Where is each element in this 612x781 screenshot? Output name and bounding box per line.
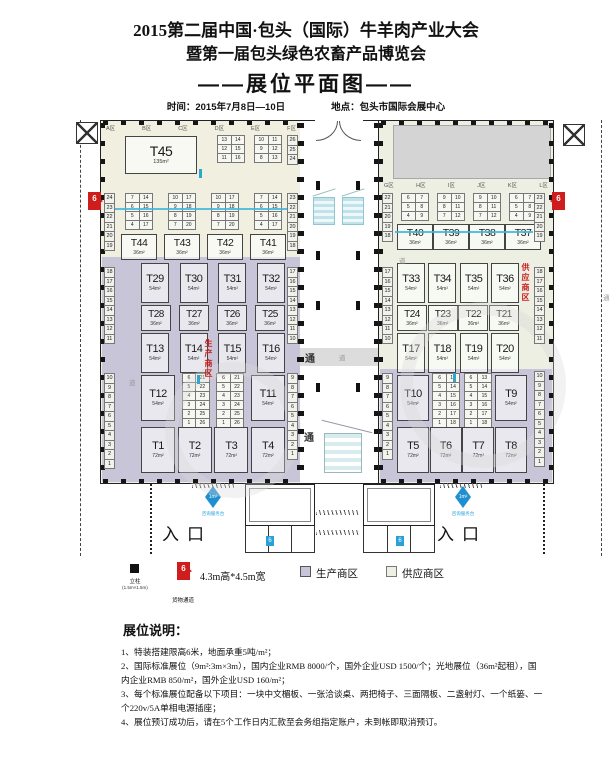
perimeter-booth-22: 22 — [288, 204, 297, 213]
cargo-legend-label: 货物通道 — [172, 596, 194, 604]
booth-group: 1017918819720 T4236m² — [207, 193, 243, 260]
cross-corridor: 通 道 — [300, 348, 378, 366]
grid-booth-12: 12 — [218, 145, 231, 153]
grid-booth-10: 10 — [169, 194, 182, 202]
booth-grid: 131412151116 — [217, 135, 245, 163]
grid-booth-18: 18 — [183, 203, 196, 211]
perimeter-booth-15: 15 — [105, 297, 114, 306]
perimeter-booth-17: 17 — [105, 278, 114, 287]
perimeter-booth-8: 8 — [105, 393, 114, 402]
booth-area: 36m² — [481, 241, 492, 246]
grid-booth-11: 11 — [452, 203, 465, 211]
perimeter-booth-8: 8 — [535, 391, 544, 400]
perimeter-booth-9: 9 — [535, 382, 544, 391]
booth-grid: 910811712 — [437, 193, 465, 221]
perimeter-booth-5: 5 — [288, 412, 297, 421]
booth-T31: T3154m² — [218, 263, 246, 303]
pillar-wall — [103, 479, 299, 483]
perimeter-booth-19: 19 — [105, 242, 114, 251]
zone-label-G区: G区 — [384, 181, 394, 189]
booth-number: T26 — [224, 310, 240, 320]
standard-booth-row: 675849 T4036m² 910811712 T3936m² 9108117… — [397, 193, 531, 250]
grid-booth-8: 8 — [416, 203, 429, 211]
note-item-3: 3、每个标准展位配备以下项目：一块中文楣板、一张洽谈桌、两把椅子、三面隔板、二盏… — [121, 688, 545, 715]
booth-area: 36m² — [517, 241, 528, 246]
booth-T29: T2954m² — [141, 263, 169, 303]
booth-area: 36m² — [176, 251, 187, 256]
notes-title: 展位说明： — [123, 620, 188, 639]
perimeter-booth-8: 8 — [383, 384, 392, 393]
central-lobby: 通 道 通 道 — [300, 120, 378, 484]
booth-T30: T3054m² — [180, 263, 208, 303]
booth-T38: T3836m² — [469, 224, 505, 250]
booth-number: T35 — [465, 274, 482, 285]
grid-booth-20: 20 — [226, 221, 239, 229]
zone-label-H区: H区 — [416, 181, 425, 189]
perimeter-booth-17: 17 — [288, 268, 297, 277]
booth-grid: 675849 — [509, 193, 537, 221]
booth-area: 36m² — [264, 322, 275, 327]
booth-area: 72m² — [407, 454, 418, 459]
supplier-zone-label: 供应商区 — [520, 263, 531, 323]
booth-area: 54m² — [188, 287, 199, 292]
perimeter-booth-1: 1 — [105, 460, 114, 469]
booth-number: T33 — [402, 274, 419, 285]
booth-area: 36m² — [188, 322, 199, 327]
booth-T36: T3654m² — [491, 263, 519, 303]
info-point-label: 咨询服务台 — [183, 511, 243, 517]
perimeter-booth-6: 6 — [383, 403, 392, 412]
perimeter-strip: 987654321 — [287, 373, 298, 460]
producer-zone-legend-label: 生产商区 — [316, 566, 358, 581]
booth-group: 910811712 T3936m² — [433, 193, 469, 250]
grid-booth-7: 7 — [438, 212, 451, 220]
perimeter-booth-1: 1 — [535, 458, 544, 467]
perimeter-booth-6: 6 — [535, 410, 544, 419]
grid-booth-17: 17 — [183, 194, 196, 202]
entrance-label: 入口 — [162, 520, 212, 545]
perimeter-booth-2: 2 — [105, 450, 114, 459]
grid-booth-5: 5 — [126, 212, 139, 220]
zone-label-K区: K区 — [508, 181, 517, 189]
booth-area: 54m² — [149, 287, 160, 292]
pillar-wall — [549, 123, 553, 481]
perimeter-booth-10: 10 — [288, 335, 297, 344]
grid-booth-5: 5 — [402, 203, 415, 211]
perimeter-booth-15: 15 — [535, 297, 544, 306]
booth-grid: 675849 — [401, 193, 429, 221]
booth-number: T14 — [185, 344, 202, 355]
pillar — [356, 301, 360, 310]
booth-T42: T4236m² — [207, 234, 243, 260]
fence-line — [543, 484, 545, 554]
grid-booth-7: 7 — [474, 212, 487, 220]
perimeter-booth-16: 16 — [288, 278, 297, 287]
grid-booth-11: 11 — [488, 203, 501, 211]
grid-booth-17: 17 — [269, 221, 282, 229]
cargo-legend-icon: 6 — [177, 562, 190, 580]
booth-area: 36m² — [445, 241, 456, 246]
zone-label-C区: C区 — [178, 124, 187, 132]
perimeter-booth-14: 14 — [383, 297, 392, 306]
corridor-label: 道 — [399, 255, 406, 265]
ramp-hatch — [316, 510, 360, 515]
grid-booth-4: 4 — [255, 221, 268, 229]
booth-area: 36m² — [226, 322, 237, 327]
perimeter-booth-20: 20 — [535, 223, 544, 232]
grid-booth-8: 8 — [212, 212, 225, 220]
booth-number: T32 — [262, 274, 279, 285]
zone-label-A区: A区 — [106, 124, 115, 132]
booth-number: T29 — [146, 274, 163, 285]
perimeter-booth-7: 7 — [105, 403, 114, 412]
grid-booth-15: 15 — [140, 203, 153, 211]
perimeter-booth-3: 3 — [105, 441, 114, 450]
perimeter-booth-16: 16 — [105, 287, 114, 296]
cyan-line — [395, 231, 533, 233]
booth-group: 910811712 T3836m² — [469, 193, 505, 250]
hydrant-marker — [199, 169, 202, 178]
staircase-icon — [324, 433, 362, 473]
blue-number-icon: 6 — [396, 536, 404, 546]
event-time: 时间：2015年7月8日—10日 — [167, 99, 285, 113]
perimeter-booth-12: 12 — [105, 325, 114, 334]
stage-area — [393, 125, 551, 179]
booth-area: 36m² — [409, 241, 420, 246]
perimeter-booth-20: 20 — [383, 213, 392, 222]
grid-booth-7: 7 — [212, 221, 225, 229]
grid-booth-10: 10 — [452, 194, 465, 202]
booth-number: T36 — [496, 274, 513, 285]
booth-area: 72m² — [152, 454, 163, 459]
stair-box-icon — [563, 124, 585, 146]
grid-booth-17: 17 — [226, 194, 239, 202]
booth-row: T2836m²T2736m²T2636m²T2536m² — [141, 305, 285, 331]
booth-number: T24 — [404, 310, 420, 320]
grid-booth-12: 12 — [269, 145, 282, 153]
booth-area: 54m² — [468, 287, 479, 292]
grid-booth-4: 4 — [510, 212, 523, 220]
perimeter-booth-13: 13 — [383, 306, 392, 315]
booth-group: 714615516417 T4136m² — [250, 193, 286, 260]
door-leaf-icon — [316, 121, 338, 141]
perimeter-booth-20: 20 — [288, 223, 297, 232]
booth-T41: T4136m² — [250, 234, 286, 260]
booth-number: T44 — [131, 238, 148, 249]
grid-booth-7: 7 — [126, 194, 139, 202]
perimeter-strip: 262524 — [287, 135, 298, 165]
booth-T32: T3254m² — [257, 263, 285, 303]
grid-booth-14: 14 — [232, 136, 245, 144]
room — [292, 526, 314, 552]
grid-booth-9: 9 — [416, 212, 429, 220]
perimeter-strip: 1817161514131211 — [104, 267, 115, 344]
pillar-swatch — [130, 564, 139, 573]
perimeter-booth-11: 11 — [288, 325, 297, 334]
event-subtitle: 暨第一届包头绿色农畜产品博览会 — [0, 40, 612, 64]
hydrant-marker — [453, 373, 456, 382]
perimeter-booth-7: 7 — [383, 393, 392, 402]
booth-number: T39 — [443, 228, 460, 239]
entrance-rooms — [245, 526, 315, 553]
zone-label-B区: B区 — [142, 124, 151, 132]
grid-booth-8: 8 — [255, 154, 268, 162]
booth-T43: T4336m² — [164, 234, 200, 260]
perimeter-strip: 987654321 — [382, 373, 393, 460]
door-leaf-icon — [339, 121, 361, 141]
perimeter-booth-13: 13 — [288, 306, 297, 315]
perimeter-booth-3: 3 — [535, 439, 544, 448]
grid-booth-19: 19 — [226, 212, 239, 220]
grid-booth-7: 7 — [255, 194, 268, 202]
note-item-2: 2、国际标准展位（9m²:3m×3m），国内企业RMB 8000/个，国外企业U… — [121, 660, 545, 687]
cargo-passage-icon: 6 — [552, 192, 565, 210]
perimeter-booth-14: 14 — [288, 297, 297, 306]
booth-area: 54m² — [188, 357, 199, 362]
perimeter-booth-2: 2 — [535, 448, 544, 457]
pillar-wall — [300, 123, 304, 481]
zone-label-L区: L区 — [539, 181, 548, 189]
pillar-wall — [381, 121, 551, 125]
info-point-icon: 1m² — [455, 486, 471, 508]
booth-T26: T2636m² — [217, 305, 247, 331]
booth-area: 54m² — [499, 287, 510, 292]
standard-booth-row: 714615516417 T4436m² 1017918819720 T4336… — [121, 193, 286, 260]
grid-booth-13: 13 — [269, 154, 282, 162]
corridor-label: 通 — [304, 429, 314, 444]
room — [411, 526, 434, 552]
perimeter-booth-10: 10 — [105, 374, 114, 383]
note-item-4: 4、展位预订成功后，请在5个工作日内汇款至会务组指定账户，未到帐即取消预订。 — [121, 716, 545, 729]
perimeter-booth-2: 2 — [383, 441, 392, 450]
booth-grid: 910811712 — [473, 193, 501, 221]
escalator-icon — [313, 197, 335, 225]
perimeter-booth-21: 21 — [288, 213, 297, 222]
supplier-zone-swatch — [386, 566, 397, 577]
perimeter-booth-10: 10 — [535, 372, 544, 381]
pillar-wall — [381, 479, 551, 483]
booth-number: T40 — [407, 228, 424, 239]
grid-booth-16: 16 — [269, 212, 282, 220]
blue-number-icon: 6 — [266, 536, 274, 546]
perimeter-booth-4: 4 — [288, 422, 297, 431]
booth-number: T5 — [407, 441, 419, 452]
perimeter-booth-13: 13 — [105, 316, 114, 325]
grid-booth-4: 4 — [402, 212, 415, 220]
event-title: 2015第二届中国·包头（国际）牛羊肉产业大会 — [0, 16, 612, 41]
grid-booth-8: 8 — [169, 212, 182, 220]
pillar — [316, 251, 320, 260]
zone-label-D区: D区 — [215, 124, 224, 132]
perimeter-booth-19: 19 — [383, 223, 392, 232]
booth-number: T30 — [185, 274, 202, 285]
booth-number: T25 — [262, 310, 278, 320]
perimeter-booth-21: 21 — [105, 223, 114, 232]
perimeter-strip: 2322212019 — [534, 193, 545, 242]
booth-area: 135m² — [153, 160, 169, 166]
perimeter-booth-3: 3 — [288, 431, 297, 440]
grid-booth-9: 9 — [255, 145, 268, 153]
booth-area: 36m² — [150, 322, 161, 327]
zone-label-F区: F区 — [287, 124, 296, 132]
perimeter-booth-4: 4 — [105, 431, 114, 440]
grid-booth-9: 9 — [212, 203, 225, 211]
floor-plan-page: { "header": { "title1": "2015第二届中国·包头（国际… — [0, 0, 612, 781]
ramp-hatch — [316, 530, 360, 535]
perimeter-booth-18: 18 — [535, 268, 544, 277]
grid-booth-6: 6 — [255, 203, 268, 211]
perimeter-booth-8: 8 — [288, 384, 297, 393]
grid-booth-6: 6 — [510, 194, 523, 202]
booth-area: 36m² — [262, 251, 273, 256]
booth-T44: T4436m² — [121, 234, 157, 260]
perimeter-booth-18: 18 — [105, 268, 114, 277]
booth-number: T12 — [149, 389, 166, 400]
note-item-1: 1、特装搭建限高6米，地面承重5吨/m²； — [121, 646, 545, 659]
perimeter-booth-9: 9 — [105, 384, 114, 393]
pillar — [356, 251, 360, 260]
perimeter-booth-12: 12 — [535, 325, 544, 334]
corridor-label: 道 — [339, 352, 346, 362]
booth-number: T13 — [146, 344, 163, 355]
ramp-hatch — [440, 483, 482, 488]
booth-T45: T45135m² — [125, 136, 197, 174]
perimeter-booth-1: 1 — [383, 450, 392, 459]
booth-area: 54m² — [152, 402, 163, 407]
booth-number: T34 — [434, 274, 451, 285]
booth-number: T42 — [217, 238, 234, 249]
grid-booth-4: 4 — [126, 221, 139, 229]
grid-booth-17: 17 — [140, 221, 153, 229]
perimeter-booth-11: 11 — [535, 335, 544, 344]
grid-booth-5: 5 — [255, 212, 268, 220]
watermark-shape — [165, 362, 301, 498]
perimeter-booth-14: 14 — [535, 306, 544, 315]
booth-T27: T2736m² — [179, 305, 209, 331]
perimeter-strip: 1716151413121110 — [382, 267, 393, 344]
booth-area: 54m² — [149, 357, 160, 362]
booth-grid: 1017918819720 — [211, 193, 239, 230]
booth-number: T45 — [150, 144, 173, 158]
grid-booth-9: 9 — [169, 203, 182, 211]
room — [364, 526, 388, 552]
perimeter-booth-16: 16 — [383, 278, 392, 287]
perimeter-strip: 1817161514131211 — [534, 267, 545, 344]
booth-area: 36m² — [406, 322, 417, 327]
grid-booth-9: 9 — [438, 194, 451, 202]
booth-grid: 714615516417 — [125, 193, 153, 230]
supplier-zone-legend-label: 供应商区 — [402, 566, 444, 581]
booth-T16: T1654m² — [257, 333, 285, 373]
booth-number: T16 — [262, 344, 279, 355]
perimeter-booth-15: 15 — [288, 287, 297, 296]
booth-row: T2954m²T3054m²T3154m²T3254m² — [141, 263, 285, 303]
perimeter-strip: 1716151413121110 — [287, 267, 298, 344]
perimeter-booth-17: 17 — [535, 278, 544, 287]
booth-group: 675849 T4036m² — [397, 193, 433, 250]
grid-booth-20: 20 — [183, 221, 196, 229]
perimeter-booth-1: 1 — [288, 450, 297, 459]
booth-number: T38 — [479, 228, 496, 239]
stair-box-icon — [76, 122, 98, 144]
pillar — [316, 181, 320, 190]
producer-zone-swatch — [300, 566, 311, 577]
perimeter-booth-7: 7 — [288, 393, 297, 402]
perimeter-strip: 10987654321 — [104, 373, 115, 469]
site-boundary-right — [601, 120, 602, 556]
booth-grid: 1011912813 — [254, 135, 282, 163]
pillar-legend-size: (1.5m×1.5m) — [108, 585, 162, 590]
booth-row: T3354m²T3454m²T3554m²T3654m² — [397, 263, 519, 303]
info-point-label: 咨询服务台 — [433, 511, 493, 517]
booth-area: 54m² — [405, 287, 416, 292]
perimeter-strip: 10987654321 — [534, 371, 545, 467]
perimeter-booth-9: 9 — [288, 374, 297, 383]
booth-number: T31 — [224, 274, 241, 285]
perimeter-booth-18: 18 — [383, 232, 392, 241]
booth-area: 54m² — [265, 357, 276, 362]
pillar-wall — [374, 123, 378, 481]
perimeter-booth-4: 4 — [383, 422, 392, 431]
perimeter-booth-22: 22 — [535, 204, 544, 213]
booth-T25: T2536m² — [255, 305, 285, 331]
perimeter-booth-24: 24 — [288, 155, 297, 164]
fence-line — [150, 484, 152, 554]
perimeter-booth-21: 21 — [383, 204, 392, 213]
grid-booth-11: 11 — [269, 136, 282, 144]
grid-booth-16: 16 — [232, 154, 245, 162]
entrance-label: 入口 — [437, 520, 487, 545]
event-venue: 地点：包头市国际会展中心 — [331, 99, 445, 113]
plan-title: ——展位平面图—— — [0, 68, 612, 98]
perimeter-booth-5: 5 — [383, 412, 392, 421]
perimeter-booth-21: 21 — [535, 213, 544, 222]
zone-label-J区: J区 — [477, 181, 485, 189]
perimeter-booth-6: 6 — [105, 412, 114, 421]
perimeter-booth-10: 10 — [383, 335, 392, 344]
perimeter-booth-12: 12 — [288, 316, 297, 325]
perimeter-booth-7: 7 — [535, 401, 544, 410]
booth-area: 36m² — [133, 251, 144, 256]
perimeter-strip: 2221201918 — [382, 193, 393, 242]
perimeter-booth-5: 5 — [535, 420, 544, 429]
grid-booth-10: 10 — [488, 194, 501, 202]
perimeter-booth-22: 22 — [105, 213, 114, 222]
zone-label-E区: E区 — [251, 124, 260, 132]
perimeter-booth-3: 3 — [383, 431, 392, 440]
grid-booth-14: 14 — [140, 194, 153, 202]
booth-number: T37 — [515, 228, 532, 239]
perimeter-booth-26: 26 — [288, 136, 297, 145]
perimeter-booth-14: 14 — [105, 306, 114, 315]
booth-T39: T3936m² — [433, 224, 469, 250]
corridor-label: 道 — [129, 377, 136, 387]
grid-booth-15: 15 — [232, 145, 245, 153]
perimeter-booth-18: 18 — [288, 242, 297, 251]
perimeter-booth-13: 13 — [535, 316, 544, 325]
perimeter-booth-16: 16 — [535, 287, 544, 296]
perimeter-booth-5: 5 — [105, 422, 114, 431]
perimeter-booth-9: 9 — [383, 374, 392, 383]
perimeter-booth-2: 2 — [288, 441, 297, 450]
grid-booth-7: 7 — [416, 194, 429, 202]
perimeter-booth-23: 23 — [288, 194, 297, 203]
booth-T40: T4036m² — [397, 224, 433, 250]
grid-booth-12: 12 — [452, 212, 465, 220]
perimeter-booth-6: 6 — [288, 403, 297, 412]
grid-booth-6: 6 — [126, 203, 139, 211]
pillar — [316, 383, 320, 392]
